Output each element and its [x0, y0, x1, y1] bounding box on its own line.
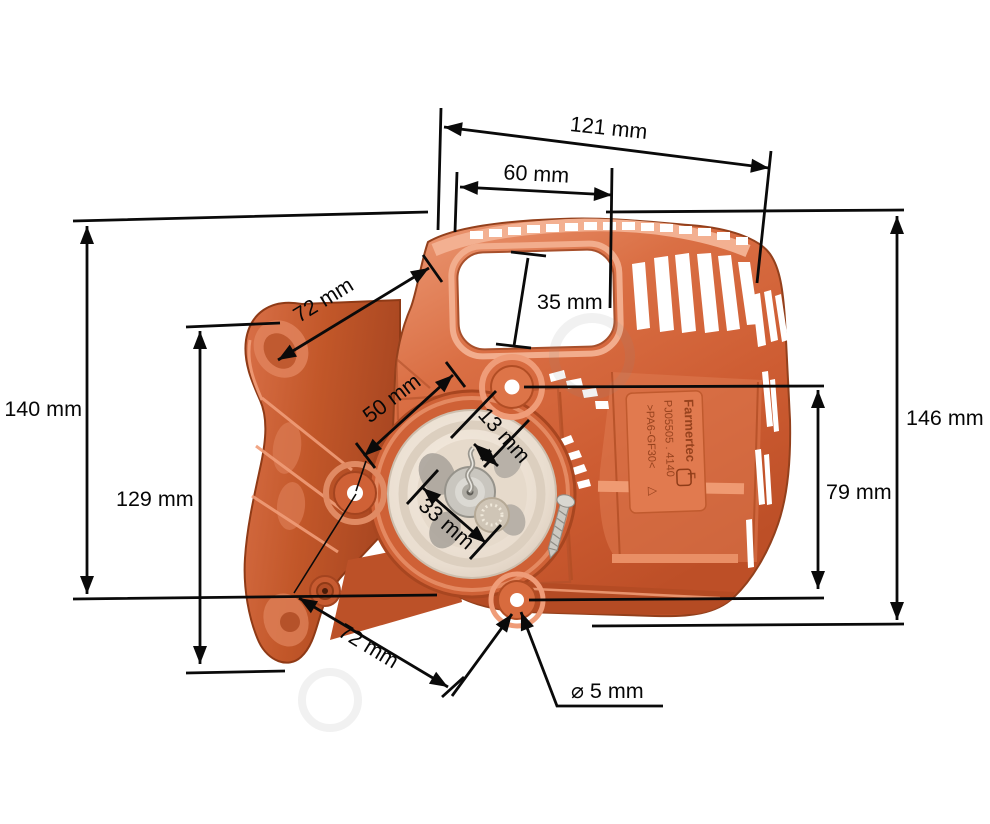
- mounting-hole: [347, 485, 363, 501]
- recoil-starter-diagram: Farmertec F PJ05505 . 4140 >PA6-GF30< △: [0, 0, 990, 824]
- panel-rib-bar: [612, 554, 738, 563]
- molded-material-text: >PA6-GF30<: [643, 404, 657, 468]
- dimension-label: 146 mm: [906, 406, 984, 430]
- leader-line: [452, 614, 512, 696]
- boss-center: [322, 588, 328, 594]
- molded-brand-text: Farmertec: [681, 399, 698, 462]
- bracket-boss: [310, 576, 340, 606]
- text-panel: Farmertec F PJ05505 . 4140 >PA6-GF30< △: [626, 391, 706, 514]
- mesh-plug: [475, 498, 509, 532]
- mounting-hole: [505, 380, 520, 395]
- dimension-label: 121 mm: [569, 112, 649, 144]
- watermark-circle: [302, 672, 358, 728]
- dimension-label: 79 mm: [826, 480, 892, 504]
- molded-logo: F: [685, 472, 697, 479]
- dimension-label: ⌀ 5 mm: [571, 679, 644, 703]
- mounting-boss-left: [326, 464, 384, 522]
- diagram-stage: Farmertec F PJ05505 . 4140 >PA6-GF30< △: [0, 0, 990, 824]
- dimension-label: 129 mm: [116, 487, 194, 511]
- dimension-line: [460, 187, 612, 195]
- dimension-label: 60 mm: [503, 160, 570, 187]
- bracket-bottom-recess: [280, 612, 300, 632]
- dimension-label: 140 mm: [4, 397, 82, 421]
- mounting-hole: [510, 593, 524, 607]
- dimension-label: 35 mm: [537, 290, 603, 314]
- recycle-symbol: △: [646, 486, 660, 496]
